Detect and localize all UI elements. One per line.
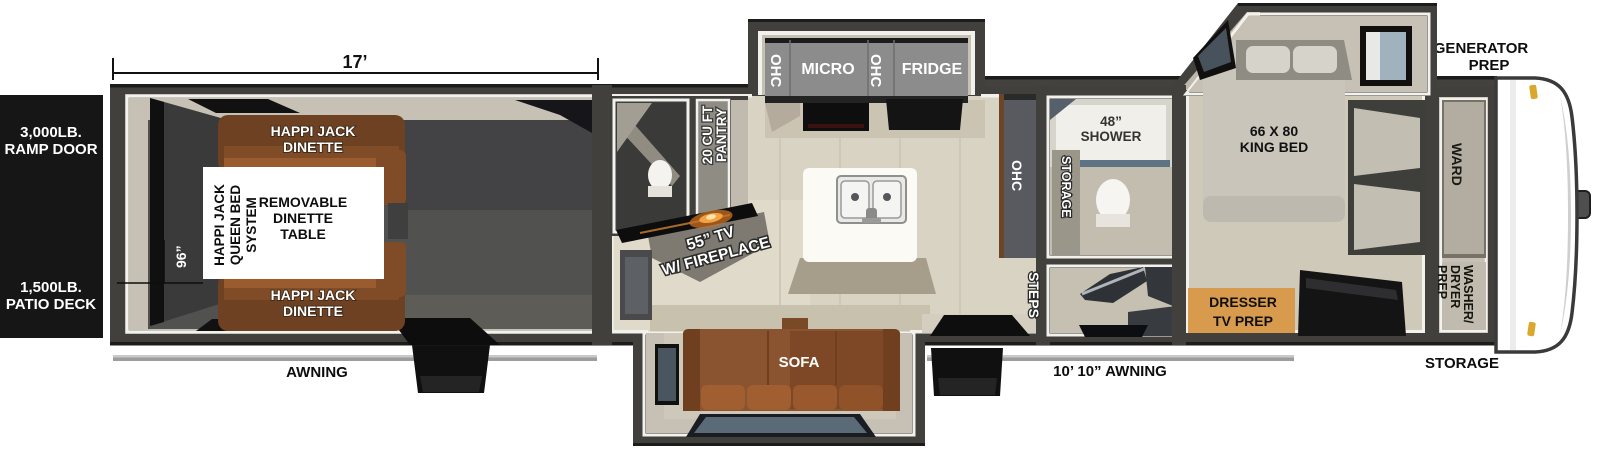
svg-text:RAMP DOOR: RAMP DOOR — [4, 141, 97, 158]
svg-text:DRESSER: DRESSER — [1209, 294, 1277, 310]
svg-text:OHC: OHC — [767, 54, 784, 88]
svg-text:QUEEN BED: QUEEN BED — [228, 185, 243, 266]
svg-text:OHC: OHC — [867, 54, 884, 88]
svg-text:SOFA: SOFA — [779, 354, 820, 371]
svg-text:SYSTEM: SYSTEM — [244, 197, 259, 253]
svg-text:20 CU FT: 20 CU FT — [700, 105, 715, 164]
svg-text:DINETTE: DINETTE — [283, 139, 343, 155]
svg-text:KING BED: KING BED — [1240, 139, 1308, 155]
svg-text:AWNING: AWNING — [286, 364, 348, 381]
svg-text:STORAGE: STORAGE — [1059, 156, 1073, 218]
svg-text:PATIO DECK: PATIO DECK — [6, 296, 96, 313]
svg-text:48”: 48” — [1100, 114, 1122, 129]
svg-text:PANTRY: PANTRY — [714, 108, 729, 162]
svg-text:TABLE: TABLE — [280, 226, 326, 242]
svg-text:96”: 96” — [173, 245, 189, 268]
svg-text:17’: 17’ — [342, 52, 367, 72]
svg-text:SHOWER: SHOWER — [1081, 129, 1142, 144]
svg-text:66 X 80: 66 X 80 — [1250, 123, 1298, 139]
svg-text:DINETTE: DINETTE — [283, 303, 343, 319]
svg-text:REMOVABLE: REMOVABLE — [259, 194, 347, 210]
svg-text:HAPPI JACK: HAPPI JACK — [271, 123, 356, 139]
svg-text:STORAGE: STORAGE — [1425, 355, 1499, 372]
svg-text:OHC: OHC — [1009, 160, 1025, 191]
svg-text:1,500LB.: 1,500LB. — [20, 279, 82, 296]
svg-text:DINETTE: DINETTE — [273, 210, 333, 226]
svg-text:FRIDGE: FRIDGE — [902, 61, 963, 78]
svg-text:TV PREP: TV PREP — [1213, 313, 1273, 329]
svg-text:STEPS: STEPS — [1026, 272, 1042, 318]
svg-text:WARD: WARD — [1449, 143, 1465, 186]
svg-text:MICRO: MICRO — [801, 61, 854, 78]
svg-text:3,000LB.: 3,000LB. — [20, 124, 82, 141]
svg-text:PREP: PREP — [1469, 57, 1510, 74]
svg-text:HAPPI JACK: HAPPI JACK — [212, 184, 227, 266]
svg-text:GENERATOR: GENERATOR — [1434, 40, 1529, 57]
svg-text:10’ 10” AWNING: 10’ 10” AWNING — [1053, 363, 1167, 380]
svg-text:HAPPI JACK: HAPPI JACK — [271, 287, 356, 303]
